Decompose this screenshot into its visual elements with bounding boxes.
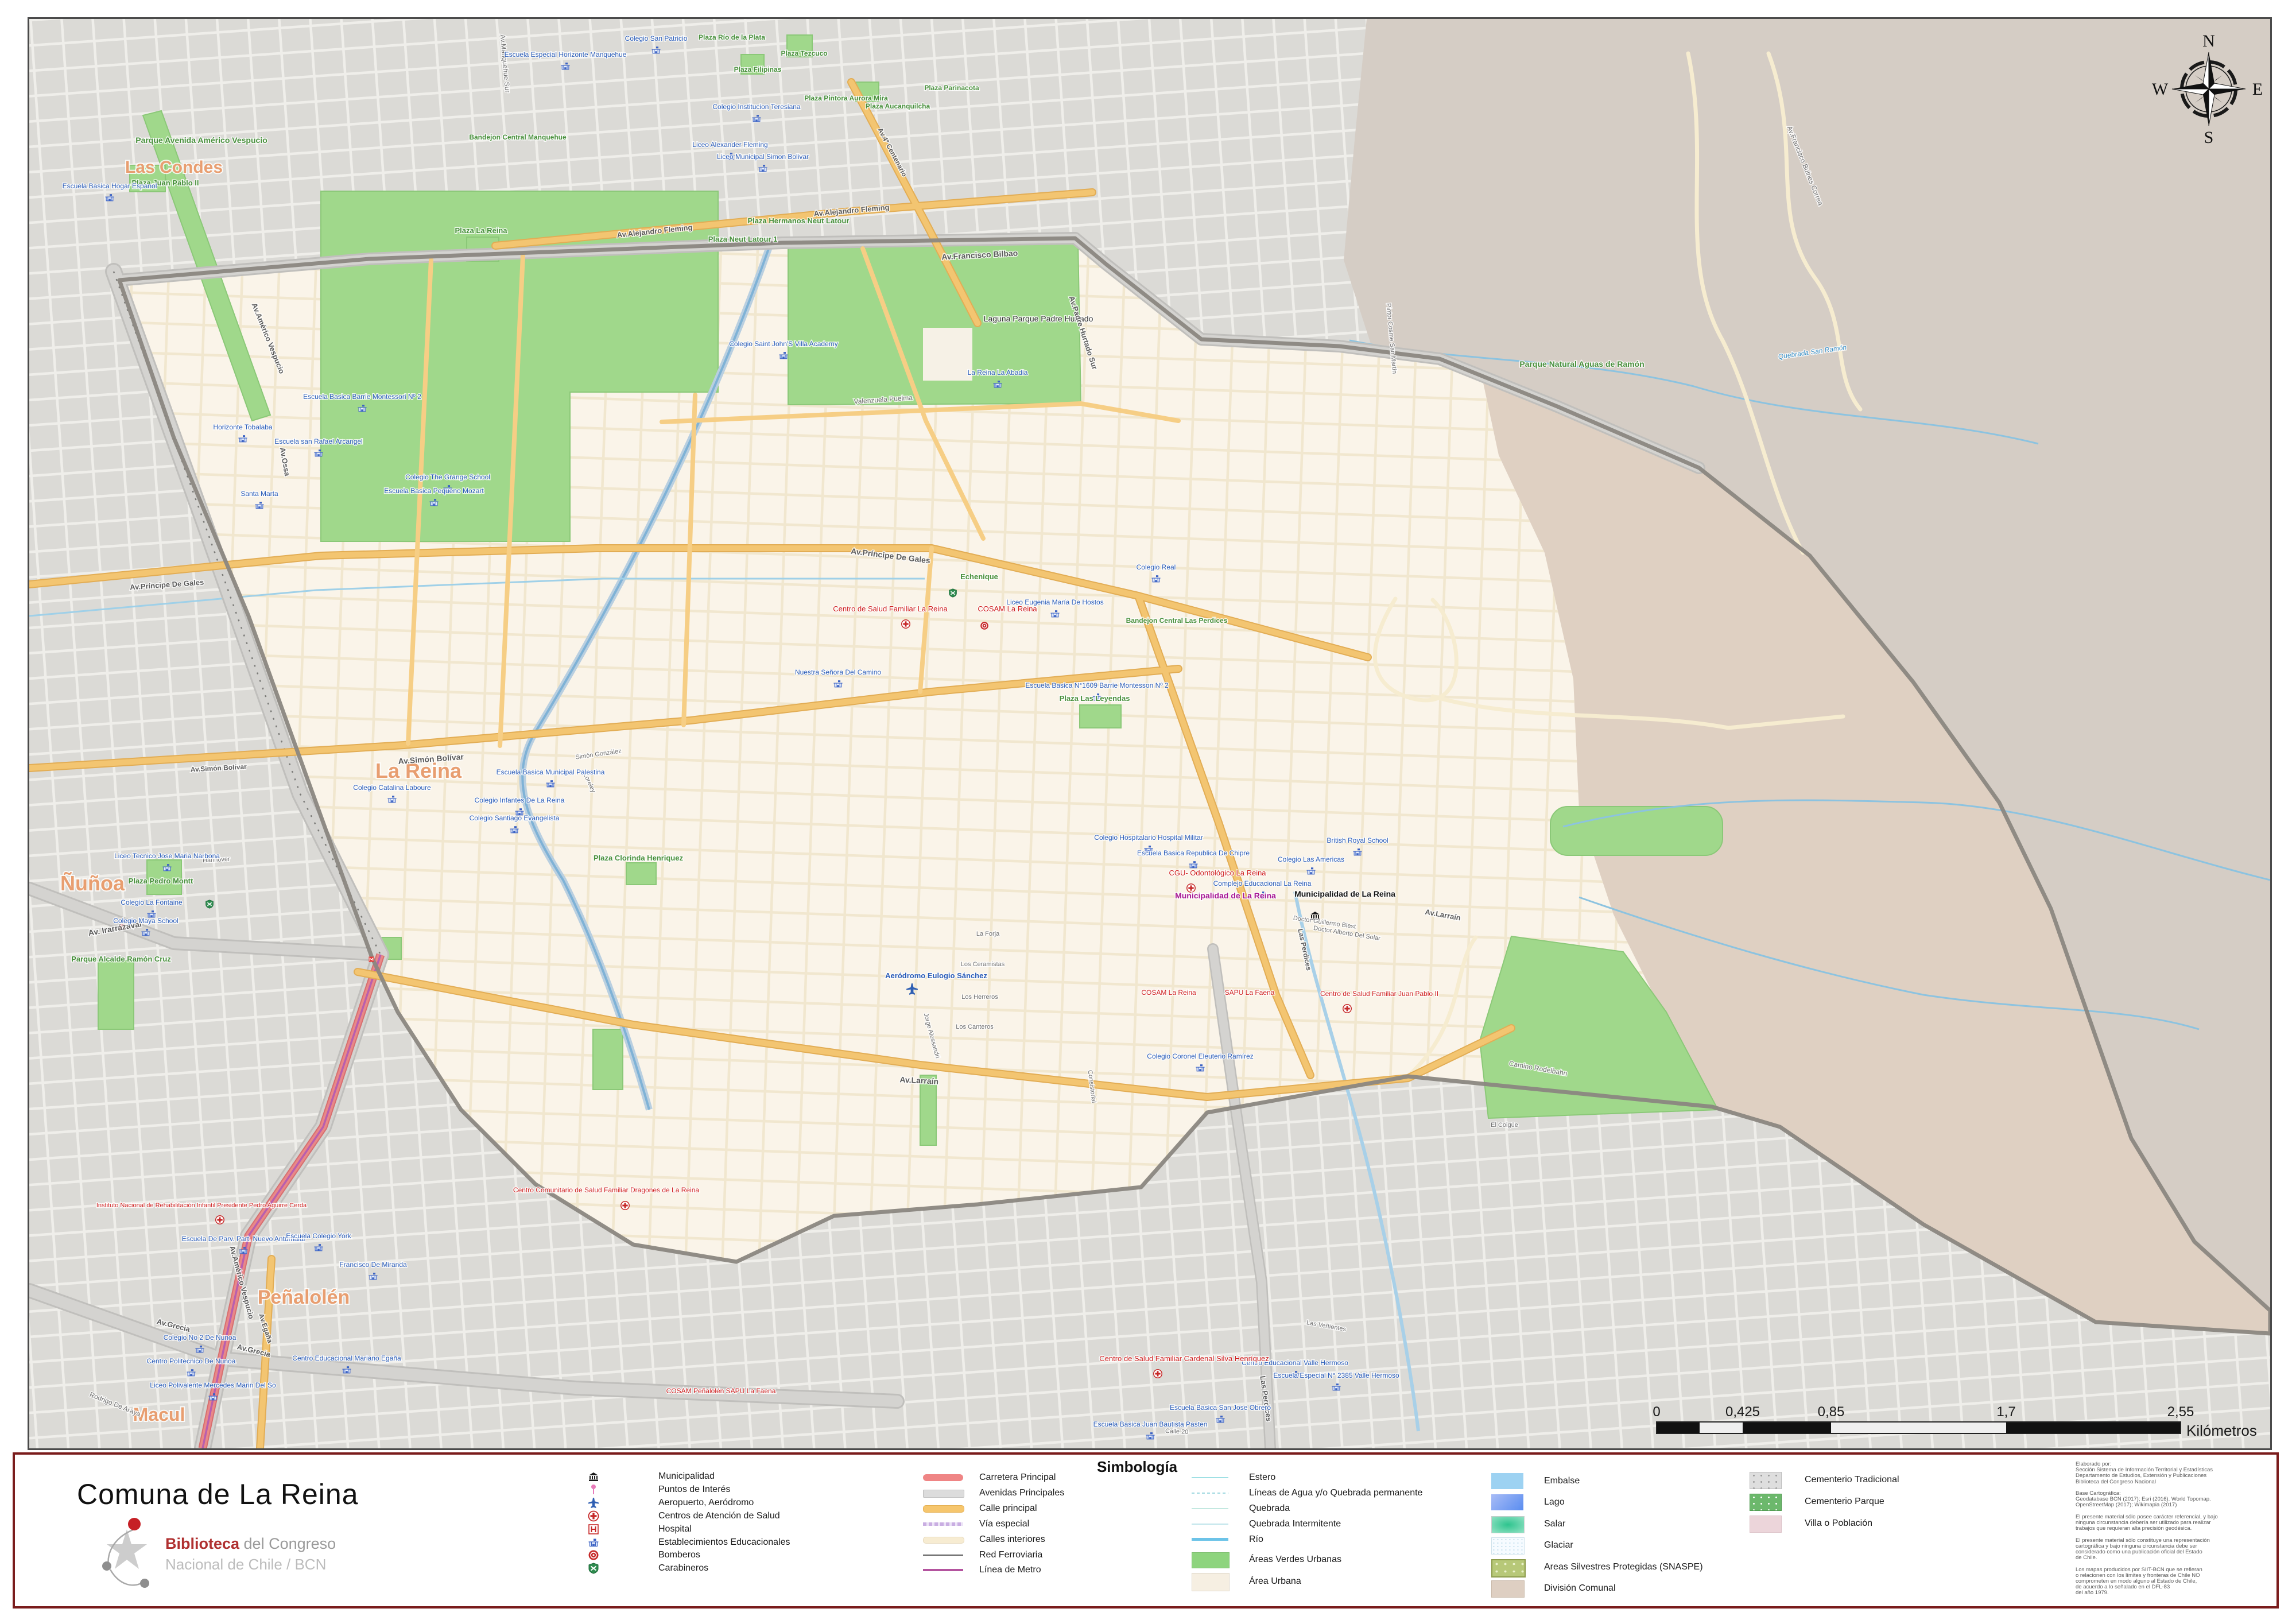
map-label: Centro Educacional Mariano Egaña (292, 1354, 401, 1362)
map-label: Bandejon Central Las Perdices (1126, 617, 1228, 625)
map-label: Centro Politecnico De Nunoa (147, 1357, 236, 1365)
map-label: Escuela Basica Hogar Espanol (63, 182, 157, 190)
legend-label: Vía especial (979, 1520, 1029, 1529)
map-label: Colegio Institucion Teresiana (712, 103, 801, 111)
map-label: SAPU La Faena (1225, 989, 1275, 997)
legend-label: Areas Silvestres Protegidas (SNASPE) (1544, 1563, 1703, 1572)
map-label: Plaza Río de la Plata (699, 33, 765, 41)
legend-label: Red Ferroviaria (979, 1551, 1042, 1560)
bcn-logo: Biblioteca del Congreso Nacional de Chil… (101, 1514, 457, 1600)
map-label: Plaza Hermanos Neut Latour (748, 216, 850, 225)
map-label: Liceo Municipal Simon Bolivar (717, 153, 809, 161)
bcn-logo-star-icon (101, 1514, 158, 1595)
map-label: Plaza Filipinas (734, 65, 782, 73)
map-label: Complejo Educacional La Reina (1213, 879, 1312, 887)
fine-print-line: trabajos que requieran alta precisión ge… (2076, 1526, 2218, 1532)
legend-label: Hospital (658, 1525, 692, 1534)
legend-label: Carretera Principal (979, 1473, 1056, 1482)
compass-w: W (2152, 80, 2169, 99)
legend-swatch (923, 1490, 964, 1498)
legend-swatch (923, 1537, 964, 1544)
metro-icon (369, 957, 374, 962)
park-building (923, 328, 972, 381)
legend-swatch (1491, 1580, 1525, 1598)
map-label: Colegio Hospitalario Hospital Militar (1094, 834, 1203, 842)
map-label: Liceo Alexander Fleming (692, 141, 767, 149)
map-label: Escuela Especial N° 2385 Valle Hermoso (1273, 1371, 1399, 1379)
legend-poi-icon (588, 1484, 599, 1495)
map-label: Colegio Maya School (113, 917, 178, 925)
legend-label: Centros de Atención de Salud (658, 1511, 780, 1521)
scale-bar-segment (1700, 1422, 1743, 1433)
map-label: Echenique (960, 572, 998, 581)
map-label: Colegio Las Americas (1278, 855, 1344, 863)
legend-swatch (923, 1474, 963, 1481)
map-label: Colegio Real (1137, 563, 1176, 571)
legend-label: Áreas Verdes Urbanas (1249, 1555, 1341, 1564)
map-label: Colegio San Patricio (625, 34, 688, 42)
map-label: COSAM La Reina (1141, 989, 1196, 997)
legend-bomb-icon (588, 1549, 599, 1561)
map-label: Escuela Basica San Jose Obrero (1170, 1404, 1271, 1412)
legend-swatch (1491, 1516, 1525, 1533)
legend-swatch (1750, 1516, 1782, 1533)
map-svg: Las CondesLa ReinaÑuñoaPeñalolénMaculLag… (29, 19, 2270, 1448)
scale-bar-segment (1831, 1422, 2006, 1433)
map-label: Plaza Pintora Aurora Mira (804, 94, 888, 102)
compass-s: S (2204, 128, 2214, 147)
legend-label: Río (1249, 1535, 1263, 1544)
legend-label: Cementerio Parque (1805, 1497, 1884, 1506)
cross-icon (216, 1216, 224, 1224)
legend-label: Cementerio Tradicional (1805, 1475, 1899, 1485)
map-label: Escuela Basica Municipal Palestina (497, 768, 605, 776)
map-label: Ñuñoa (60, 871, 125, 895)
map-label: Centro de Salud Familiar La Reina (833, 604, 948, 613)
map-label: Escuela Colegio York (286, 1232, 351, 1240)
map-label: Colegio Coronel Eleuterio Ramírez (1147, 1052, 1253, 1060)
legend-cross-icon (588, 1510, 599, 1522)
legend-label: Aeropuerto, Aeródromo (658, 1498, 754, 1507)
scale-bar-segment (2006, 1422, 2181, 1433)
map-label: Bandejon Central Manquehue (469, 133, 567, 141)
compass-e: E (2252, 80, 2263, 99)
legend-label: Calle principal (979, 1504, 1037, 1513)
legend-swatch (1192, 1552, 1230, 1568)
scale-tick: 0,85 (1818, 1404, 1845, 1420)
map-label: Escuela Basica Pequeno Mozart (384, 487, 484, 495)
legend-label: Estero (1249, 1473, 1275, 1482)
map-label: Centro de Salud Familiar Juan Pablo II (1320, 990, 1438, 998)
map-label: Nuestra Señora Del Camino (795, 668, 881, 676)
scale-tick: 1,7 (1996, 1404, 2015, 1420)
legend-swatch (1192, 1477, 1228, 1478)
legend-swatch (1192, 1524, 1228, 1525)
map-label: Plaza Pedro Montt (129, 877, 193, 885)
legend-label: Embalse (1544, 1476, 1580, 1486)
scale-unit: Kilómetros (2186, 1422, 2257, 1439)
legend-plane-icon (588, 1497, 599, 1509)
map-label: Calle 20 (1165, 1428, 1189, 1436)
map-label: Parque Natural Aguas de Ramón (1519, 359, 1644, 369)
fine-print-line: OpenStreetMap (2017); Wikimapia (2017) (2076, 1502, 2218, 1508)
compass-n: N (2202, 32, 2215, 51)
map-label: Colegio Saint John'S Villa Academy (729, 340, 838, 348)
legend-label: Quebrada Intermitente (1249, 1520, 1341, 1529)
legend-swatch (1750, 1494, 1782, 1511)
simbologia-title: Simbología (1097, 1458, 1177, 1476)
map-label: Centro de Salud Familiar Cardenal Silva … (1099, 1354, 1269, 1363)
map-label: Los Herreros (961, 994, 998, 1001)
legend-swatch (923, 1522, 963, 1526)
legend-panel: Comuna de La Reina Biblioteca del Congre… (13, 1452, 2279, 1609)
legend-swatch (1192, 1538, 1228, 1541)
map-label: Los Canteros (956, 1024, 994, 1030)
legend-label: Glaciar (1544, 1541, 1573, 1550)
map-canvas: Las CondesLa ReinaÑuñoaPeñalolénMaculLag… (28, 17, 2272, 1450)
map-label: Colegio No 2 De Nunoa (164, 1334, 236, 1342)
map-label: CGU- Odontológico La Reina (1169, 869, 1266, 877)
legend-label: División Comunal (1544, 1584, 1616, 1593)
map-label: Los Ceramistas (961, 961, 1005, 968)
scale-bar-segment (1657, 1422, 1700, 1433)
legend-label: Carabineros (658, 1564, 708, 1573)
map-label: El Coigüe (1491, 1122, 1518, 1129)
map-label: British Royal School (1327, 836, 1388, 844)
legend-school-icon (588, 1537, 599, 1548)
carab-icon (949, 589, 957, 597)
legend-label: Avenidas Principales (979, 1489, 1064, 1498)
legend-label: Bomberos (658, 1551, 700, 1560)
legend-label: Villa o Población (1805, 1519, 1872, 1528)
cross-icon (1154, 1370, 1162, 1378)
legend-label: Calles interiores (979, 1535, 1045, 1544)
legend-swatch (923, 1505, 964, 1513)
scale-tick: 0 (1653, 1404, 1660, 1420)
map-label: Escuela Basica Juan Bautista Pasten (1093, 1420, 1208, 1428)
map-label: Escuela Basica Barrie Montessori Nº 2 (303, 393, 421, 401)
map-label: COSAM La Reina (978, 604, 1037, 613)
legend-swatch (923, 1555, 963, 1556)
legend-swatch (1491, 1559, 1526, 1578)
map-label: Colegio Santiago Evangelista (470, 814, 560, 822)
legend-label: Líneas de Agua y/o Quebrada permanente (1249, 1489, 1422, 1498)
map-label: Parque Avenida Américo Vespucio (135, 135, 267, 145)
map-label: Plaza Aucanquilcha (866, 102, 930, 110)
map-label: La Forja (976, 931, 1000, 937)
legend-swatch (1491, 1494, 1523, 1510)
map-label: Colegio La Fontaine (121, 898, 183, 906)
map-label: Francisco De Miranda (339, 1261, 407, 1269)
map-label: Parque Alcalde Ramón Cruz (71, 955, 171, 963)
map-label: COSAM Peñalolén SAPU La Faena (666, 1387, 776, 1395)
legend-swatch (1192, 1508, 1228, 1509)
legend-swatch (1192, 1573, 1230, 1591)
bomb-icon (980, 622, 988, 630)
map-label: Escuela Basica Republica De Chipre (1137, 849, 1250, 857)
fine-print-line: del año 1979. (2076, 1590, 2218, 1596)
legend-label: Línea de Metro (979, 1565, 1041, 1575)
legend-swatch (1491, 1537, 1525, 1555)
carab-icon (206, 900, 214, 908)
legend-label: Salar (1544, 1520, 1565, 1529)
map-label: Plaza Clorinda Henriquez (594, 854, 684, 862)
legend-label: Establecimientos Educacionales (658, 1538, 790, 1547)
map-label: Plaza Las Leyendas (1060, 694, 1130, 703)
scale-tick: 0,425 (1725, 1404, 1760, 1420)
scale-bar-segment (1743, 1422, 1831, 1433)
legend-swatch (1750, 1472, 1782, 1489)
map-label: Horizonte Tobalaba (213, 423, 273, 431)
cross-icon (621, 1201, 629, 1210)
legend-label: Lago (1544, 1498, 1565, 1507)
map-label: Escuela Especial Horizonte Manquehue (505, 51, 627, 59)
map-label: Liceo Tecnico Jose Maria Narbona (114, 852, 220, 860)
page: Las CondesLa ReinaÑuñoaPeñalolénMaculLag… (0, 0, 2296, 1624)
legend-swatch (1192, 1493, 1228, 1494)
legend-hosp-icon (588, 1524, 599, 1535)
map-label: Escuela Basica N°1609 Barrie Montesson N… (1025, 681, 1169, 689)
map-label: Liceo Polivalente Mercedes Marin Del So (150, 1381, 276, 1389)
map-label: Santa Marta (241, 490, 278, 498)
legend-label: Puntos de Interés (658, 1485, 730, 1494)
map-label: Municipalidad de La Reina (1294, 889, 1395, 898)
map-label: Peñalolén (258, 1286, 350, 1308)
fine-print: Elaborado por:Sección Sistema de Informa… (2076, 1462, 2218, 1596)
map-label: Escuela san Rafael Arcangel (274, 437, 362, 445)
map-label: Municipalidad de La Reina (1175, 891, 1276, 900)
map-label: Plaza Tezcuco (781, 49, 827, 57)
fine-print-line: de Chile. (2076, 1555, 2218, 1561)
legend-muni-icon (588, 1471, 599, 1482)
legend-swatch (923, 1569, 963, 1571)
map-label: Plaza Neut Latour 1 (708, 235, 778, 243)
map-label: Macul (133, 1404, 185, 1425)
legend-label: Quebrada (1249, 1504, 1290, 1513)
bcn-logo-line1: Biblioteca del Congreso (165, 1535, 336, 1553)
map-label: Las Condes (125, 158, 223, 177)
map-label: Centro Comunitario de Salud Familiar Dra… (513, 1186, 699, 1194)
map-label: Instituto Nacional de Rehabilitación Inf… (96, 1202, 307, 1209)
scale-tick: 2,55 (2167, 1404, 2194, 1420)
cross-icon (902, 620, 910, 628)
legend-swatch (1491, 1473, 1523, 1489)
legend-carab-icon (588, 1563, 599, 1574)
page-title: Comuna de La Reina (77, 1478, 359, 1511)
fine-print-line: Biblioteca del Congreso Nacional (2076, 1479, 2218, 1485)
map-label: Aeródromo Eulogio Sánchez (885, 971, 987, 980)
legend-label: Área Urbana (1249, 1577, 1301, 1586)
map-label: Colegio The Grange School (405, 473, 490, 481)
cross-icon (1343, 1005, 1351, 1013)
map-label: Plaza La Reina (455, 226, 507, 235)
map-label: Colegio Infantes De La Reina (475, 796, 565, 804)
legend-label: Municipalidad (658, 1472, 715, 1481)
map-label: Colegio Catalina Laboure (353, 784, 431, 792)
map-label: Plaza Parinacota (924, 84, 979, 92)
bcn-logo-line2: Nacional de Chile / BCN (165, 1556, 326, 1573)
map-label: La Reina La Abadia (968, 369, 1028, 377)
